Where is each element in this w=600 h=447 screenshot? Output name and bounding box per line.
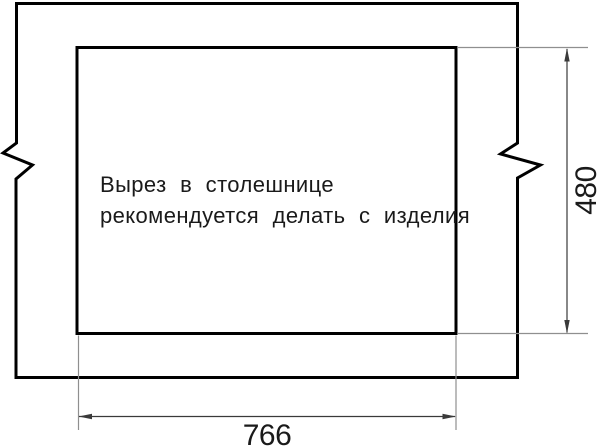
note-text-line-1: Вырез в столешнице bbox=[100, 172, 334, 197]
height-dimension-label: 480 bbox=[570, 166, 600, 215]
technical-drawing: Вырез в столешнице рекомендуется делать … bbox=[0, 0, 600, 447]
note-text-line-2: рекомендуется делать с изделия bbox=[100, 203, 470, 228]
width-dimension-label: 766 bbox=[243, 419, 292, 447]
